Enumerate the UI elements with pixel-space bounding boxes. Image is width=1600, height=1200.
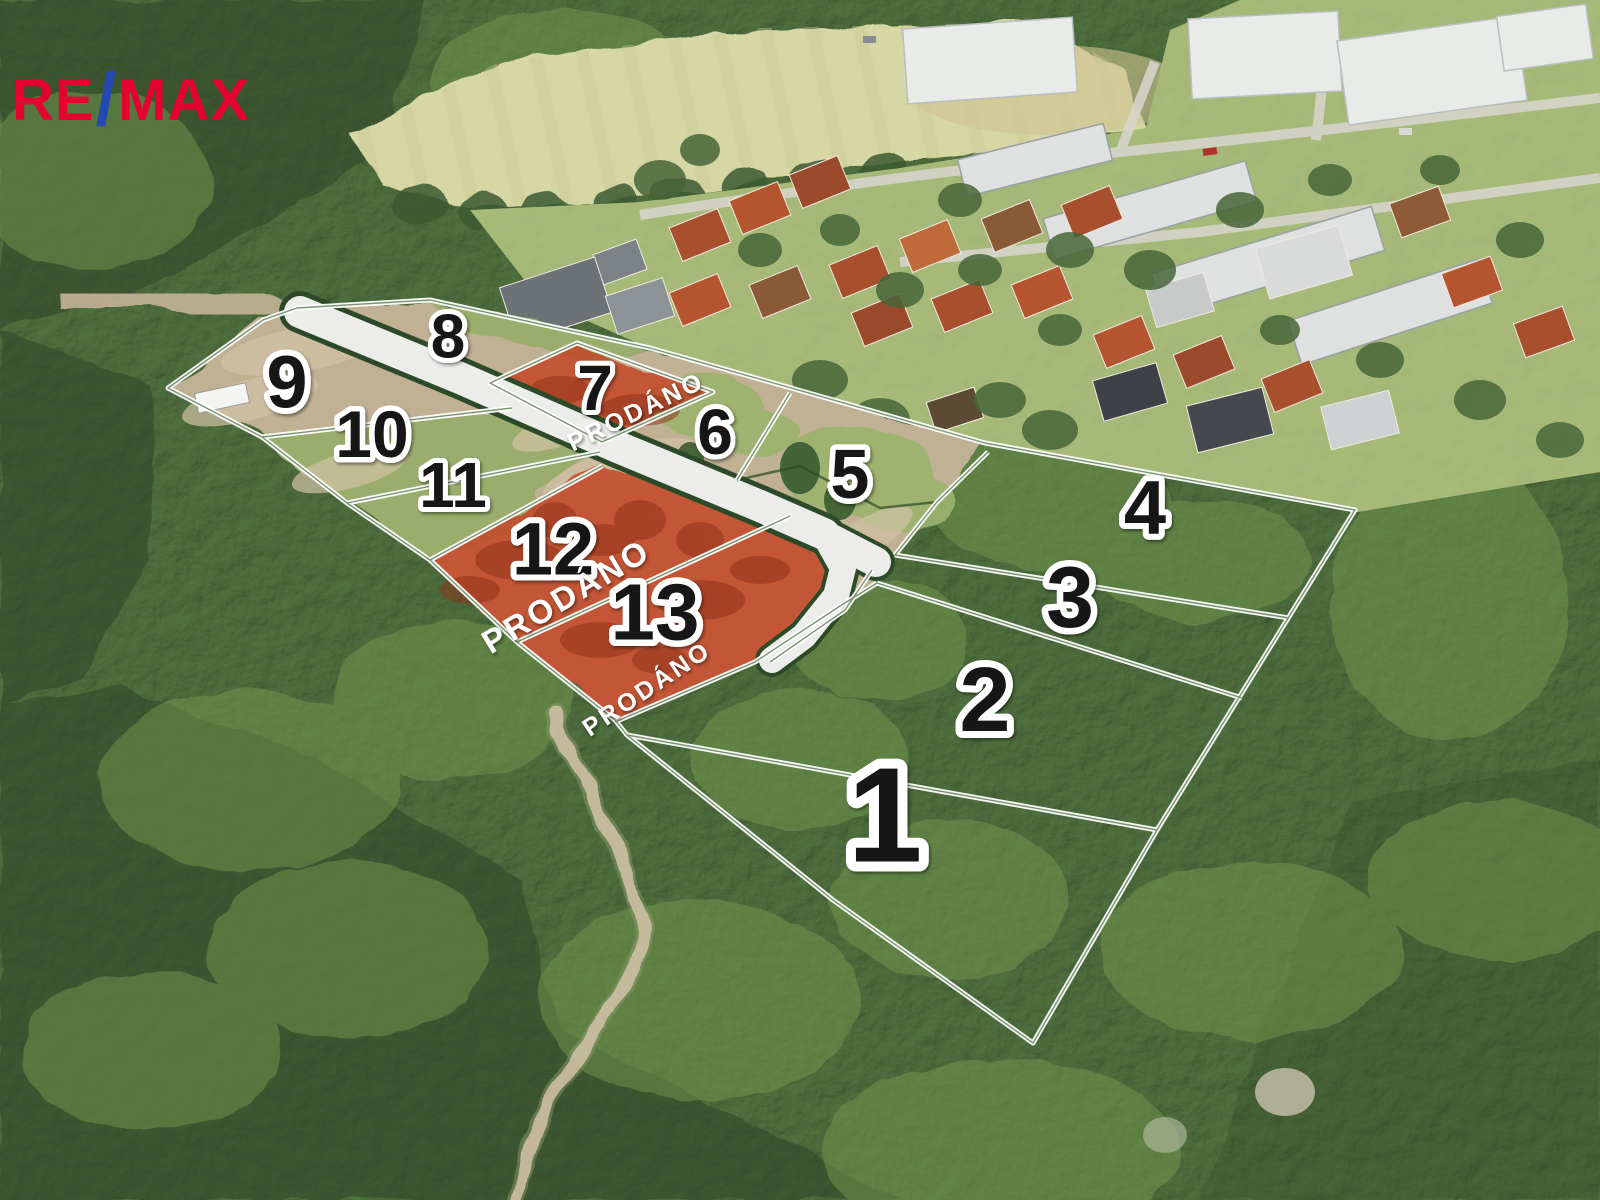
parcel-4-number: 4 xyxy=(1124,466,1166,551)
aerial-scene: 1 2 3 4 5 6 7 8 9 10 11 12 13 PRODÁNO PR… xyxy=(0,0,1600,1200)
remax-logo: RE/MAX xyxy=(12,58,250,132)
parcel-6-number: 6 xyxy=(697,396,733,468)
parcel-3-number: 3 xyxy=(1046,550,1094,646)
parcel-1-number: 1 xyxy=(847,740,922,891)
parcel-8-number: 8 xyxy=(431,303,465,372)
parcel-2-number: 2 xyxy=(959,649,1010,751)
logo-re-text: RE xyxy=(12,68,95,133)
aerial-photo-background xyxy=(0,0,1600,1200)
parcel-9-number: 9 xyxy=(266,341,307,424)
aerial-parcel-photo: 1 2 3 4 5 6 7 8 9 10 11 12 13 PRODÁNO PR… xyxy=(0,0,1600,1200)
dead-tree xyxy=(1255,1068,1315,1116)
logo-max-text: MAX xyxy=(118,68,250,133)
dead-tree xyxy=(1143,1117,1187,1153)
logo-slash-icon: / xyxy=(96,63,118,137)
parcel-11-number: 11 xyxy=(419,449,487,521)
parcel-5-number: 5 xyxy=(831,435,870,513)
parcel-10-number: 10 xyxy=(335,397,408,471)
